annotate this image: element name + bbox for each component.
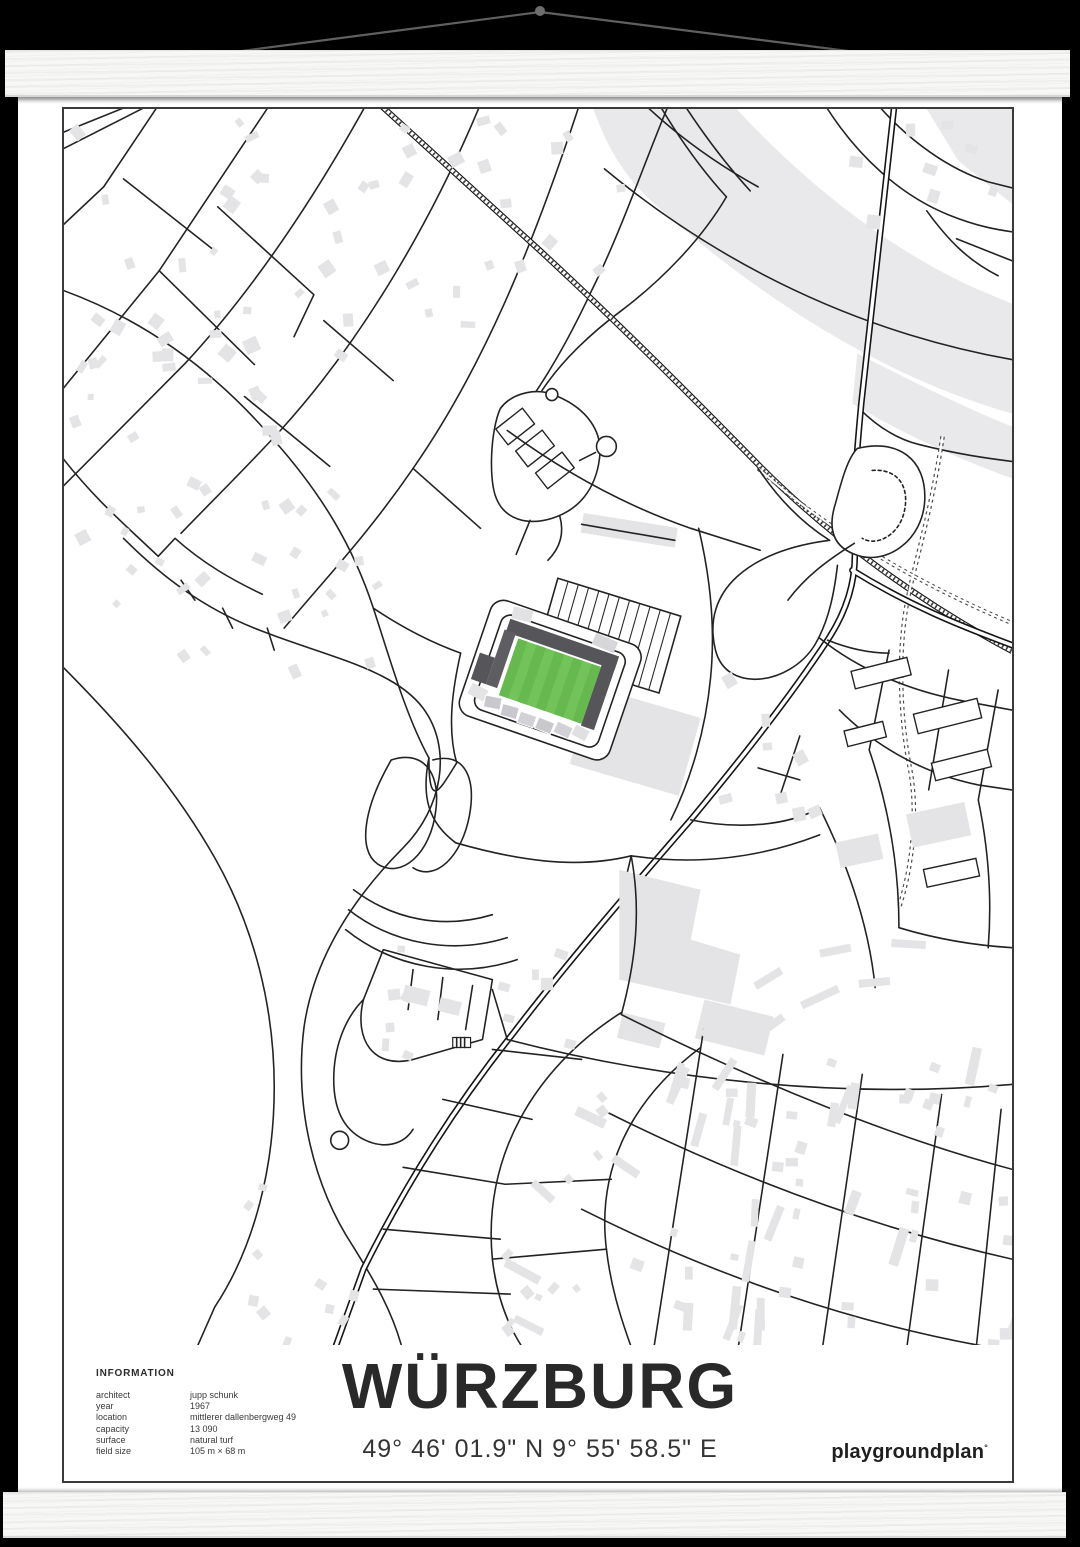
- info-row: capacity13 090: [96, 1424, 296, 1435]
- brand-name: playgroundplan: [831, 1441, 984, 1463]
- stadium-map: [64, 109, 1012, 1345]
- hanger-knob-icon: [535, 6, 545, 16]
- info-value: 13 090: [190, 1424, 218, 1435]
- terraced-gardens: [334, 757, 517, 1144]
- string-line: [234, 12, 856, 52]
- product-photo: INFORMATION architectjupp schunkyear1967…: [0, 0, 1080, 1547]
- brand-logo: playgroundplan°: [831, 1441, 988, 1464]
- hanger-bar-top: [5, 50, 1070, 97]
- poster-title: WÜRZBURG: [18, 1349, 1062, 1423]
- sports-complex: [491, 389, 677, 561]
- street-network-south: [373, 1013, 1012, 1345]
- info-label: capacity: [96, 1424, 190, 1435]
- hillside-paths: [64, 109, 440, 1345]
- junction-ramps: [691, 446, 925, 825]
- poster: INFORMATION architectjupp schunkyear1967…: [18, 52, 1062, 1492]
- brand-mark: °: [984, 1442, 988, 1452]
- buildings-outlined-east: [835, 657, 991, 887]
- map-frame: [62, 107, 1014, 1483]
- hanger-bar-bottom: [3, 1492, 1066, 1538]
- riverbank-area: [927, 109, 1012, 204]
- industrial-buildings: [492, 856, 1012, 1090]
